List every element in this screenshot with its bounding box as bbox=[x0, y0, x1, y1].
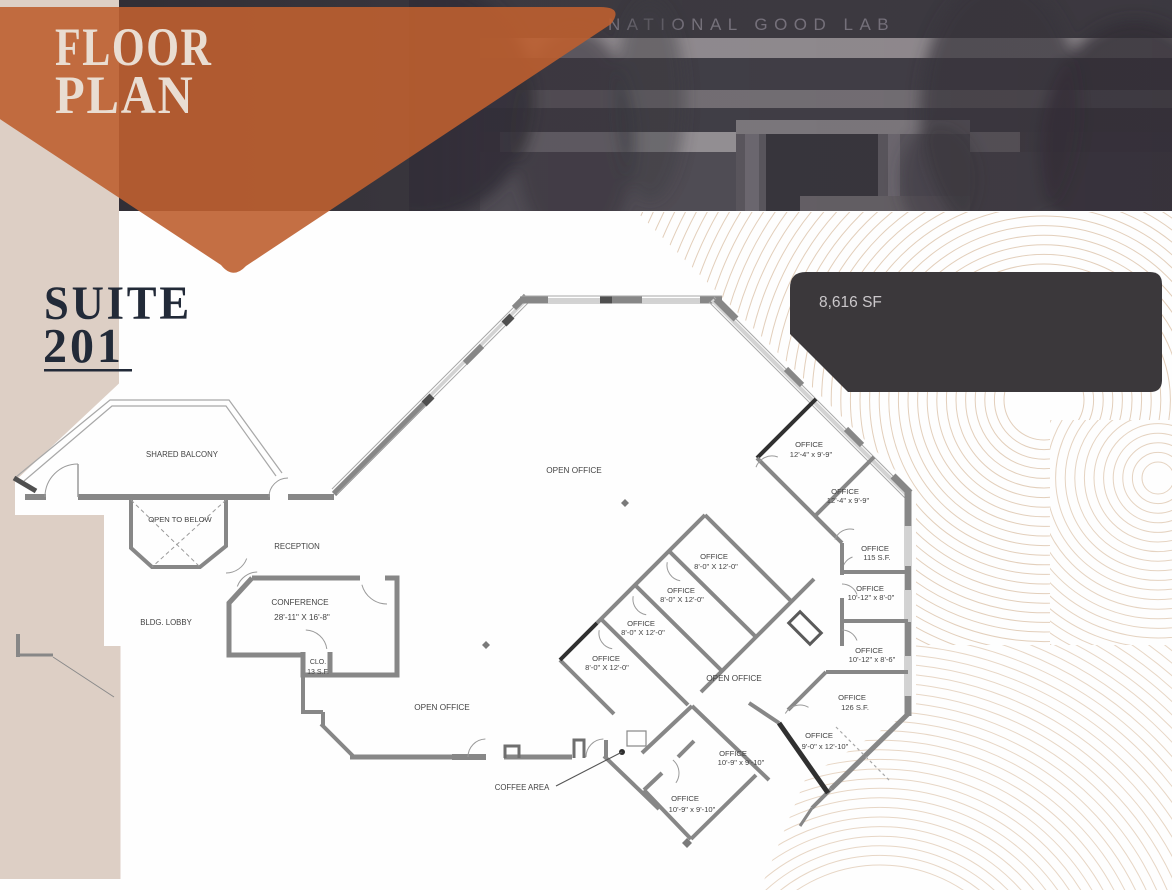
svg-text:OFFICE: OFFICE bbox=[719, 749, 747, 758]
svg-text:10'-9" x 9'-10": 10'-9" x 9'-10" bbox=[669, 805, 716, 814]
svg-text:115 S.F.: 115 S.F. bbox=[863, 553, 890, 562]
svg-text:OFFICE: OFFICE bbox=[627, 619, 655, 628]
svg-text:OFFICE: OFFICE bbox=[592, 654, 620, 663]
svg-text:OFFICE: OFFICE bbox=[671, 794, 699, 803]
svg-text:8'-0" X 12'-0": 8'-0" X 12'-0" bbox=[621, 628, 665, 637]
svg-text:10'-12" x 8'-6": 10'-12" x 8'-6" bbox=[849, 655, 896, 664]
svg-text:SHARED BALCONY: SHARED BALCONY bbox=[146, 450, 219, 459]
svg-text:OFFICE: OFFICE bbox=[700, 552, 728, 561]
svg-text:BLDG. LOBBY: BLDG. LOBBY bbox=[140, 618, 192, 627]
svg-text:126 S.F.: 126 S.F. bbox=[841, 703, 869, 712]
svg-text:OFFICE: OFFICE bbox=[855, 646, 883, 655]
svg-text:COFFEE AREA: COFFEE AREA bbox=[495, 783, 550, 792]
svg-text:12'-4" x 9'-9": 12'-4" x 9'-9" bbox=[827, 496, 870, 505]
svg-text:OFFICE: OFFICE bbox=[667, 586, 695, 595]
svg-text:13 S.F.: 13 S.F. bbox=[307, 669, 329, 676]
svg-text:OFFICE: OFFICE bbox=[856, 584, 884, 593]
svg-text:OFFICE: OFFICE bbox=[861, 544, 889, 553]
svg-text:RECEPTION: RECEPTION bbox=[274, 542, 320, 551]
svg-text:OFFICE: OFFICE bbox=[831, 487, 859, 496]
svg-text:10'-12" x 8'-0": 10'-12" x 8'-0" bbox=[848, 593, 895, 602]
svg-text:CONFERENCE: CONFERENCE bbox=[271, 598, 329, 607]
svg-text:8'-0" X 12'-0": 8'-0" X 12'-0" bbox=[660, 595, 704, 604]
svg-text:OFFICE: OFFICE bbox=[805, 731, 833, 740]
svg-text:8,616 SF: 8,616 SF bbox=[819, 294, 882, 311]
svg-text:201: 201 bbox=[43, 320, 124, 374]
svg-text:12'-4" x 9'-9": 12'-4" x 9'-9" bbox=[790, 450, 833, 459]
svg-text:OPEN OFFICE: OPEN OFFICE bbox=[706, 674, 762, 683]
svg-text:OFFICE: OFFICE bbox=[838, 693, 866, 702]
svg-text:OPEN OFFICE: OPEN OFFICE bbox=[546, 466, 602, 475]
svg-text:8'-0" X 12'-0": 8'-0" X 12'-0" bbox=[694, 562, 738, 571]
svg-text:PLAN: PLAN bbox=[55, 66, 194, 126]
svg-text:CLO.: CLO. bbox=[310, 659, 326, 666]
svg-text:OFFICE: OFFICE bbox=[795, 440, 823, 449]
svg-text:OPEN OFFICE: OPEN OFFICE bbox=[414, 703, 470, 712]
svg-text:28'-11" X 16'-8": 28'-11" X 16'-8" bbox=[274, 613, 330, 622]
svg-text:9'-0" x 12'-10": 9'-0" x 12'-10" bbox=[802, 742, 849, 751]
svg-text:10'-9" x 9'-10": 10'-9" x 9'-10" bbox=[718, 758, 765, 767]
svg-text:OPEN TO BELOW: OPEN TO BELOW bbox=[148, 515, 212, 524]
svg-text:8'-0" X 12'-0": 8'-0" X 12'-0" bbox=[585, 663, 629, 672]
